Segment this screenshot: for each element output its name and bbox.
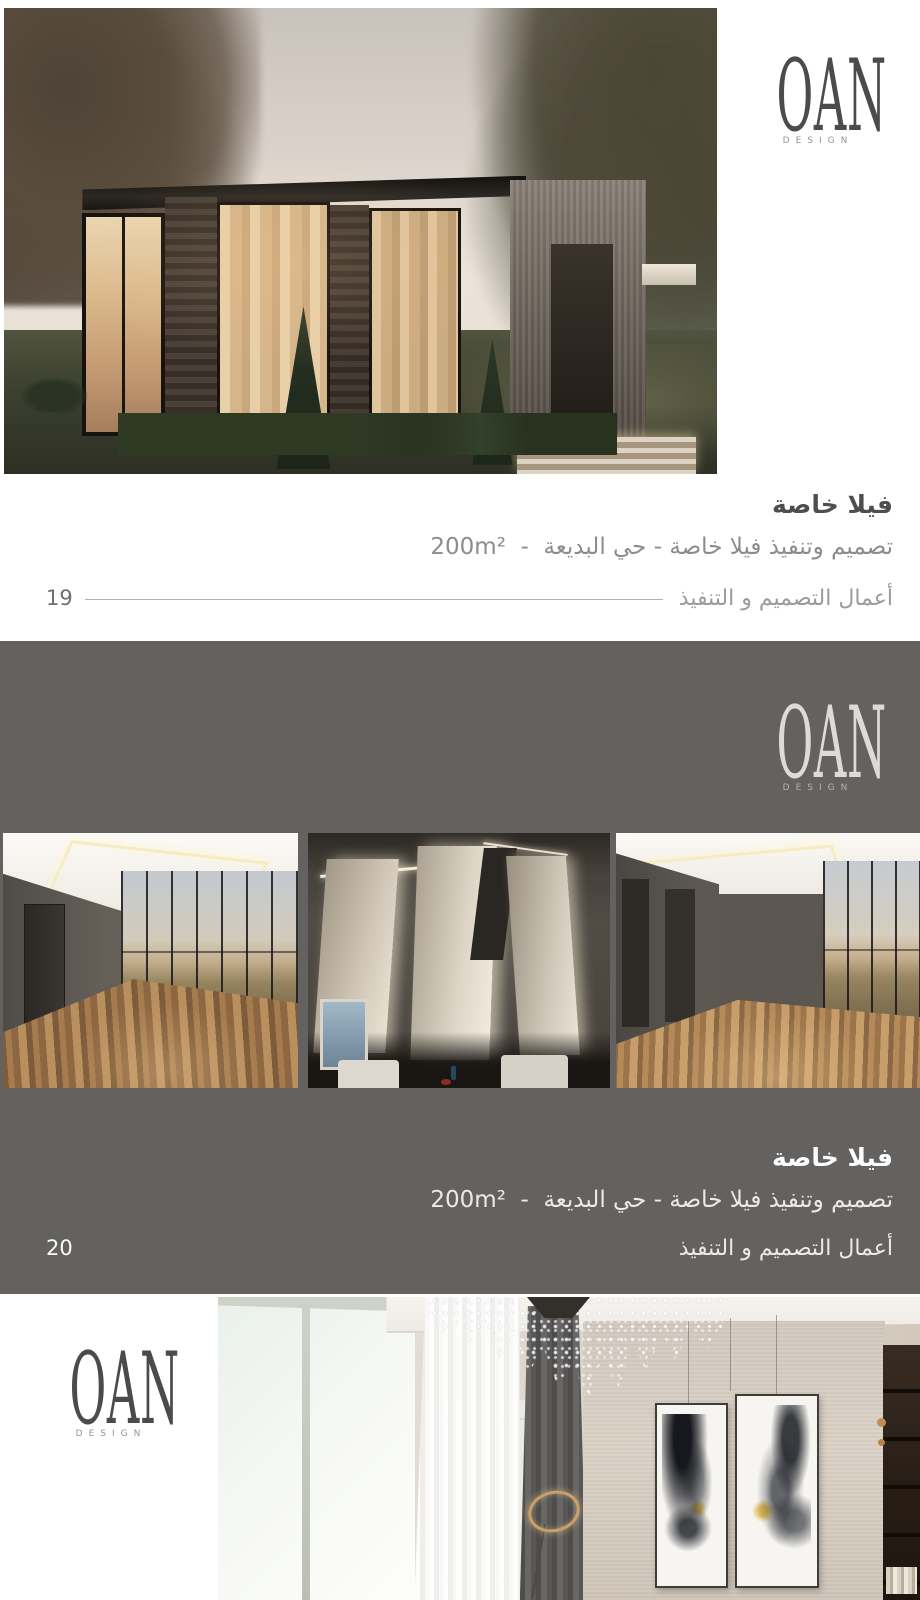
project-subtitle: تصميم وتنفيذ فيلا خاصة - حي البديعة - 20… (220, 532, 893, 562)
floor-sheen (671, 1012, 884, 1089)
villa-warm-glow (75, 157, 517, 371)
floor-sheen (68, 1001, 263, 1088)
page-footer: 19 أعمال التصميم و التنفيذ (0, 583, 920, 613)
framed-artwork-right (735, 1394, 819, 1588)
hanging-wire (688, 1321, 689, 1406)
door (622, 879, 649, 1027)
villa-canopy-slab (642, 264, 695, 285)
sofa (501, 1055, 567, 1088)
footer-rule (85, 599, 663, 600)
page-footer: 20 أعمال التصميم و التنفيذ (0, 1233, 920, 1263)
villa-exterior-photo (4, 8, 717, 474)
project-caption: فيلا خاصة تصميم وتنفيذ فيلا خاصة - حي ال… (220, 1143, 893, 1215)
oan-logo: OAN DESIGN (760, 699, 870, 799)
oan-logo-tagline: DESIGN (760, 136, 870, 146)
hanging-wire (776, 1315, 777, 1397)
page-number: 19 (46, 586, 73, 610)
footer-label: أعمال التصميم و التنفيذ (679, 1236, 893, 1261)
sofa (338, 1060, 398, 1088)
page-20: OAN DESIGN (0, 641, 920, 1294)
page-number: 20 (46, 1236, 73, 1260)
oan-logo-word: OAN (777, 48, 854, 147)
brochure-canvas: OAN DESIGN فيلا خاصة تصميم وتنفيذ فيلا خ… (0, 0, 920, 1600)
backlit-panel (506, 856, 580, 1055)
window-mullion (302, 1297, 310, 1600)
oan-logo-tagline: DESIGN (53, 1429, 163, 1439)
hanging-wire (730, 1318, 731, 1391)
door (665, 889, 695, 1022)
page-21-partial: OAN DESIGN (0, 1297, 920, 1600)
page-19: OAN DESIGN فيلا خاصة تصميم وتنفيذ فيلا خ… (0, 0, 920, 641)
project-subtitle: تصميم وتنفيذ فيلا خاصة - حي البديعة - 20… (220, 1185, 893, 1215)
interior-photo-bedroom (218, 1297, 920, 1600)
door (24, 904, 65, 1026)
project-caption: فيلا خاصة تصميم وتنفيذ فيلا خاصة - حي ال… (220, 490, 893, 562)
oan-logo-word: OAN (70, 1341, 147, 1440)
books (886, 1567, 917, 1594)
interior-photo-hall-right (616, 833, 920, 1088)
oan-logo-word: OAN (777, 695, 854, 794)
bright-window (218, 1297, 415, 1600)
oan-logo-tagline: DESIGN (760, 783, 870, 793)
interior-photo-feature-wall (308, 833, 610, 1088)
oan-logo: OAN DESIGN (53, 1345, 163, 1445)
bottle (451, 1066, 456, 1080)
oan-logo: OAN DESIGN (760, 52, 870, 152)
dark-bookshelf (883, 1345, 920, 1600)
project-title: فيلا خاصة (220, 1143, 893, 1173)
villa-concrete-tower (510, 180, 645, 446)
footer-label: أعمال التصميم و التنفيذ (679, 586, 893, 611)
project-title: فيلا خاصة (220, 490, 893, 520)
villa-hedges (118, 413, 617, 455)
interior-photo-hall-left (3, 833, 298, 1088)
framed-artwork-left (655, 1403, 728, 1588)
villa-bush (18, 376, 89, 413)
